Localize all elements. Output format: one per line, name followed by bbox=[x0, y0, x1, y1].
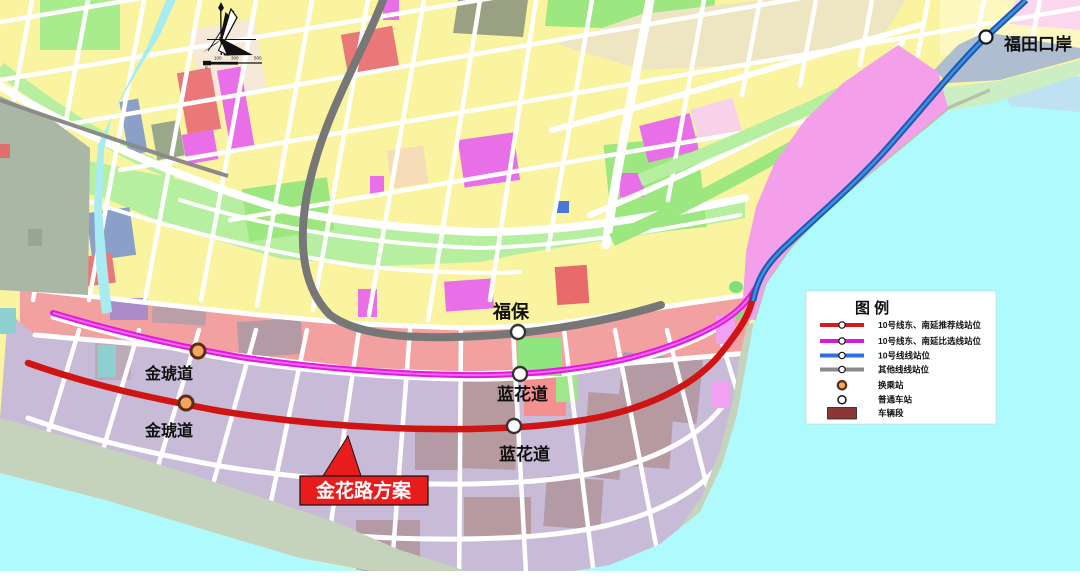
svg-text:蓝花道: 蓝花道 bbox=[497, 384, 548, 404]
svg-text:100: 100 bbox=[214, 56, 222, 61]
svg-text:福田口岸: 福田口岸 bbox=[1003, 34, 1072, 54]
svg-text:10号线东、南延比选线站位: 10号线东、南延比选线站位 bbox=[878, 336, 981, 346]
svg-text:500: 500 bbox=[254, 56, 262, 61]
svg-text:普通车站: 普通车站 bbox=[878, 395, 913, 405]
svg-text:10号线线站位: 10号线线站位 bbox=[878, 351, 930, 361]
svg-text:车辆段: 车辆段 bbox=[878, 408, 904, 418]
svg-text:蓝花道: 蓝花道 bbox=[499, 444, 550, 464]
svg-text:金花路方案: 金花路方案 bbox=[315, 479, 412, 502]
svg-text:300: 300 bbox=[231, 56, 239, 61]
svg-text:金琥道: 金琥道 bbox=[144, 421, 193, 440]
svg-text:金琥道: 金琥道 bbox=[144, 364, 193, 383]
svg-text:福保: 福保 bbox=[492, 301, 530, 322]
svg-text:图 例: 图 例 bbox=[855, 299, 889, 317]
svg-text:换乘站: 换乘站 bbox=[878, 380, 904, 390]
svg-text:其他线线站位: 其他线线站位 bbox=[878, 365, 930, 375]
svg-text:10号线东、南延推荐线站位: 10号线东、南延推荐线站位 bbox=[878, 320, 981, 330]
